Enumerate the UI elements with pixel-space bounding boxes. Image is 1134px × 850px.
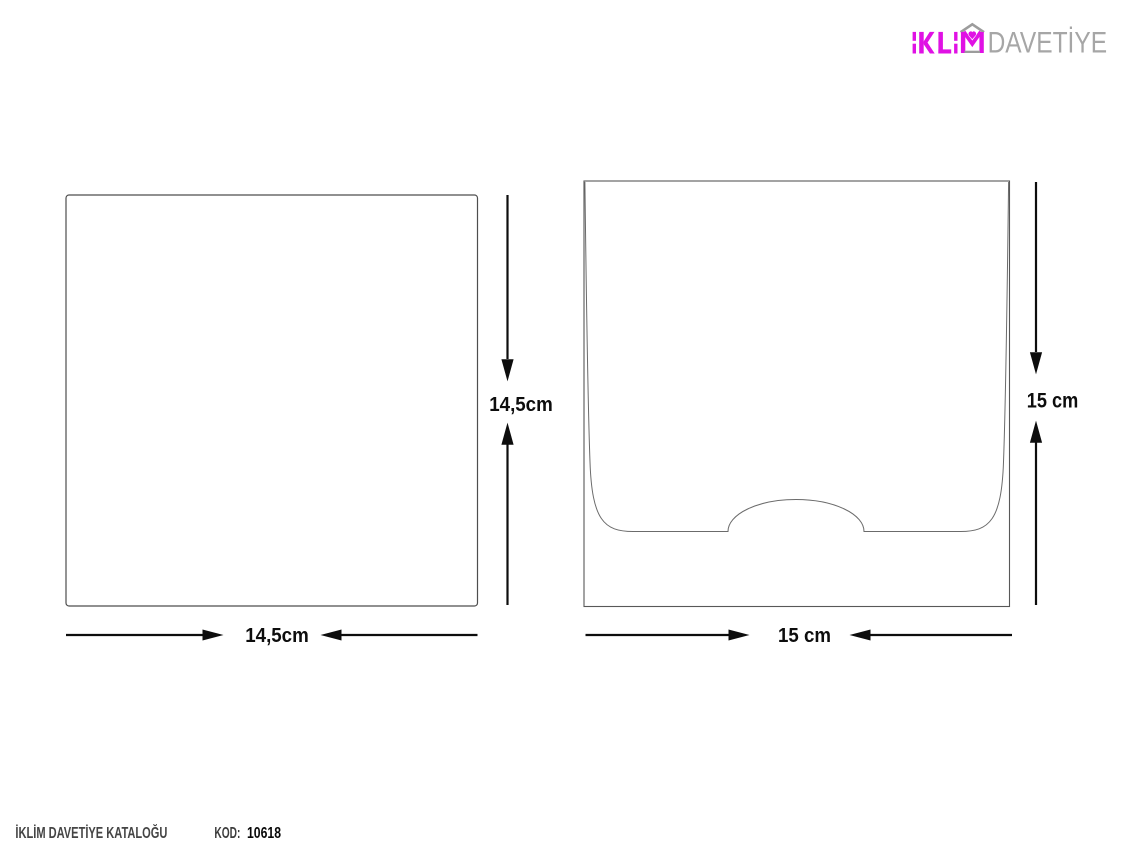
svg-text:15 cm: 15 cm — [1027, 389, 1079, 413]
svg-text:14,5cm: 14,5cm — [489, 394, 553, 416]
svg-text:İKLİM DAVETİYE KATALOĞU: İKLİM DAVETİYE KATALOĞU — [15, 824, 167, 842]
svg-text:14,5cm: 14,5cm — [245, 625, 309, 647]
svg-text:DAVETİYE: DAVETİYE — [988, 27, 1108, 60]
svg-text:15 cm: 15 cm — [778, 625, 831, 647]
svg-text:10618: 10618 — [247, 825, 281, 842]
svg-text:KOD:: KOD: — [214, 825, 240, 842]
